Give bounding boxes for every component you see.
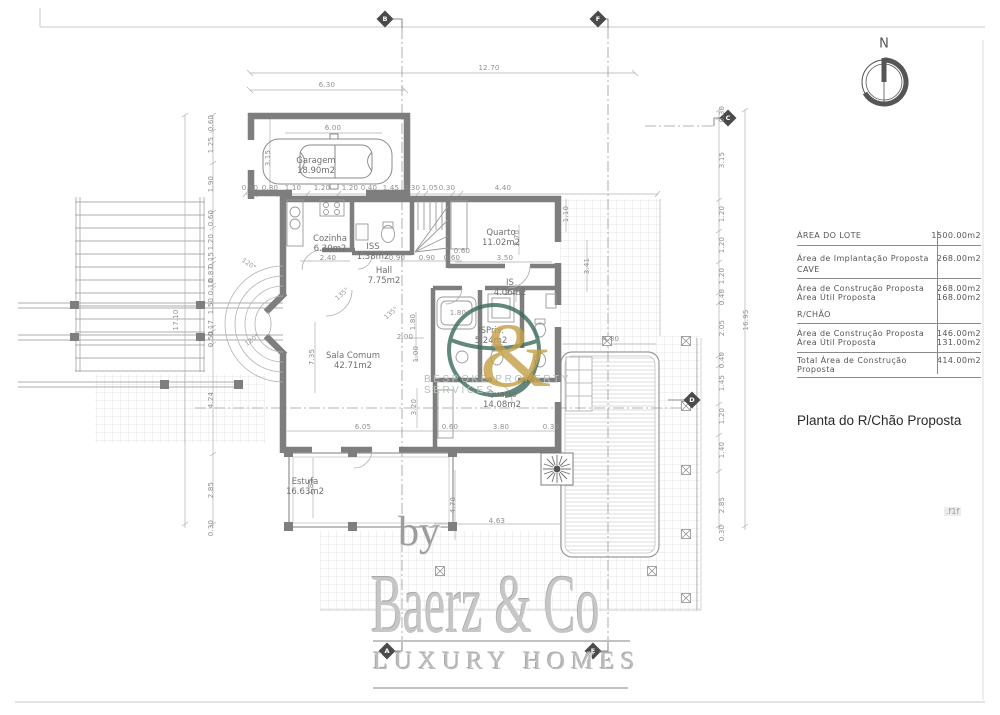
row-value: 146.00m2 <box>937 329 981 338</box>
row-value: 268.00m2 <box>937 284 981 293</box>
row-label: ÁREA DO LOTE <box>797 231 861 240</box>
interior-walls <box>322 199 558 450</box>
table-row: Área de Construção Proposta 146.00m2 <box>797 324 981 338</box>
row-label: Área de Construção Proposta <box>797 329 924 338</box>
row-label: Total Área de Construção Proposta <box>797 356 937 374</box>
door-arcs <box>268 250 530 468</box>
entrance-steps <box>225 266 283 382</box>
north-arrow <box>862 58 906 104</box>
walls <box>248 113 561 453</box>
section-label: CAVE <box>797 265 820 274</box>
table-row: Área Útil Proposta 131.00m2 <box>797 338 981 353</box>
row-label: Área de Construção Proposta <box>797 284 924 293</box>
car-icon <box>263 134 392 189</box>
row-label: Área Útil Proposta <box>797 338 876 347</box>
table-section-rchao: R/CHÃO <box>797 302 981 324</box>
table-section-cave: CAVE <box>797 263 981 279</box>
row-value: 1500.00m2 <box>931 231 981 240</box>
drawing-title: Planta do R/Chão Proposta <box>797 413 961 428</box>
sun-symbol <box>541 453 573 485</box>
pool-steps-icon <box>566 357 592 411</box>
stairs-icon <box>415 201 448 252</box>
swimming-pool <box>561 352 659 557</box>
table-row: Área de Construção Proposta 268.00m2 <box>797 279 981 293</box>
row-value: 168.00m2 <box>937 293 981 302</box>
areas-table: ÁREA DO LOTE 1500.00m2 Área de Implantaç… <box>797 231 981 378</box>
table-row: Área Útil Proposta 168.00m2 <box>797 293 981 302</box>
edge-artifact-tag: .f1f <box>944 507 961 516</box>
table-divider <box>937 231 938 374</box>
north-label: N <box>879 37 889 52</box>
table-row-total: Total Área de Construção Proposta 414.00… <box>797 353 981 378</box>
estufa-walls <box>284 448 457 531</box>
table-row: Área de Implantação Proposta 268.00m2 <box>797 246 981 263</box>
row-label: Área Útil Proposta <box>797 293 876 302</box>
pergola <box>18 197 283 389</box>
row-value: 268.00m2 <box>937 254 981 263</box>
row-label: Área de Implantação Proposta <box>797 254 929 263</box>
row-value: 414.00m2 <box>937 356 981 374</box>
table-row: ÁREA DO LOTE 1500.00m2 <box>797 231 981 246</box>
kitchen-fixtures <box>287 200 344 246</box>
section-label: R/CHÃO <box>797 310 831 319</box>
row-value: 131.00m2 <box>937 338 981 347</box>
floor-plan-sheet: 12.706.306.003.150.500.801.101.201.200.4… <box>0 0 1000 715</box>
